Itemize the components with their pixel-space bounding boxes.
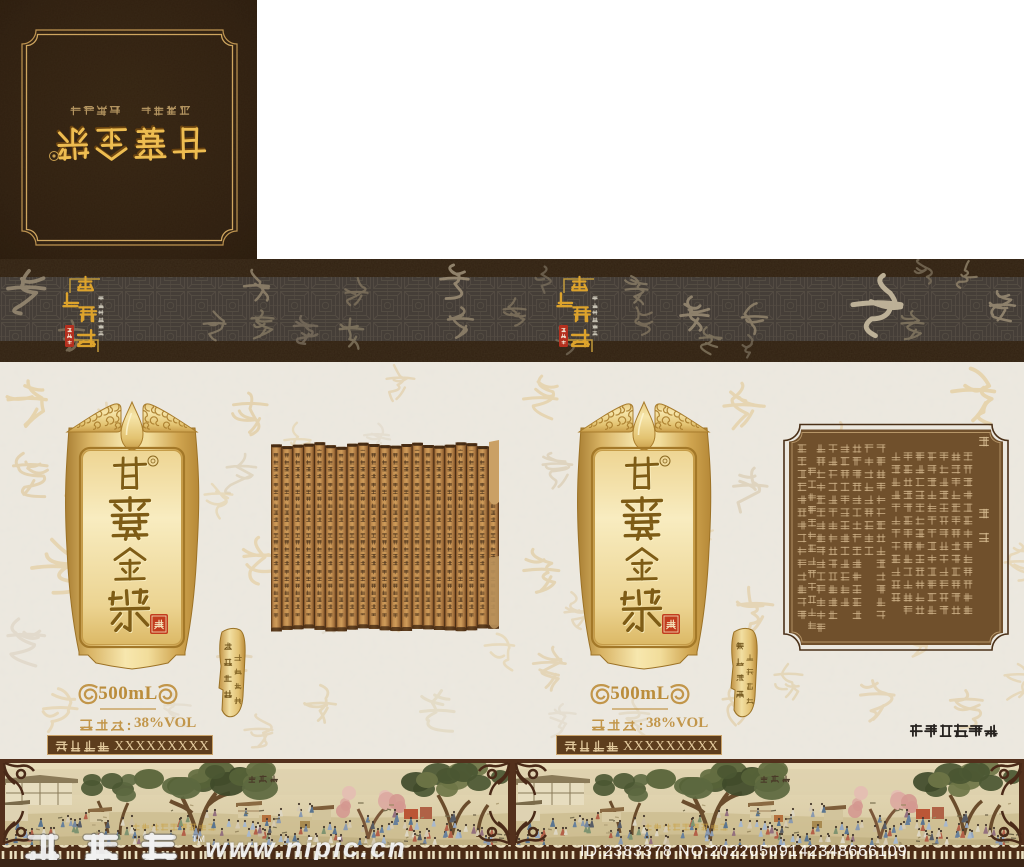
svg-text:TM: TM: [192, 834, 205, 844]
